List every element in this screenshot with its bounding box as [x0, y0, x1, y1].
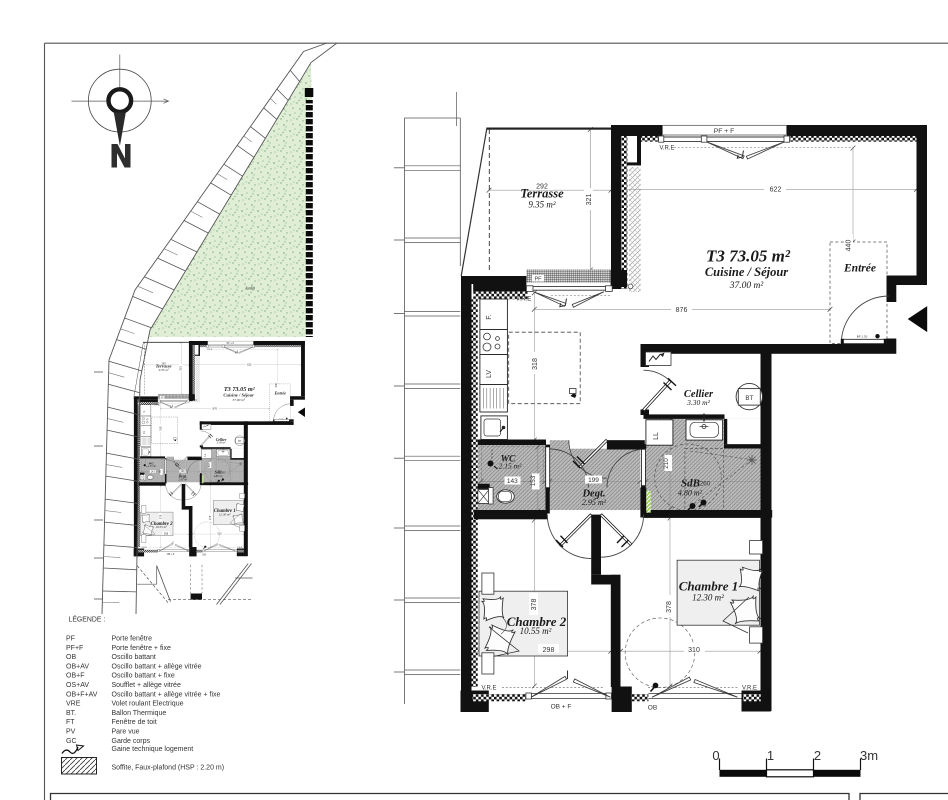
svg-text:Oscillo battant + allège vitré: Oscillo battant + allège vitrée: [112, 663, 202, 670]
svg-text:Soufflet + allège vitrée: Soufflet + allège vitrée: [112, 682, 181, 689]
svg-text:1: 1: [767, 748, 774, 763]
svg-text:10.55 m²: 10.55 m²: [520, 626, 552, 636]
svg-text:210: 210: [663, 458, 670, 469]
svg-text:Soffite, Faux-plafond (HSP : 2: Soffite, Faux-plafond (HSP : 2.20 m): [112, 765, 225, 772]
svg-text:Chambre 1: Chambre 1: [679, 579, 739, 594]
svg-text:T3 73.05 m²: T3 73.05 m²: [706, 247, 791, 266]
svg-text:V.R.E: V.R.E: [659, 146, 674, 152]
svg-text:BF 1.30: BF 1.30: [857, 335, 868, 339]
svg-text:Gaine technique logement: Gaine technique logement: [112, 746, 194, 753]
svg-text:199: 199: [588, 477, 599, 484]
svg-text:9.35 m²: 9.35 m²: [528, 200, 555, 210]
svg-text:Entrée: Entrée: [843, 263, 876, 275]
svg-text:GC: GC: [66, 738, 77, 745]
svg-text:12.30 m²: 12.30 m²: [692, 593, 724, 603]
svg-text:LV: LV: [486, 370, 493, 378]
svg-text:298: 298: [543, 647, 555, 654]
svg-text:4.80 m²: 4.80 m²: [678, 489, 703, 498]
svg-text:V.R.E: V.R.E: [516, 295, 532, 302]
svg-text:0: 0: [712, 748, 719, 763]
svg-text:318: 318: [532, 358, 539, 370]
svg-text:OB + F: OB + F: [551, 704, 572, 711]
svg-text:3.30 m²: 3.30 m²: [686, 398, 710, 407]
svg-text:622: 622: [770, 187, 782, 194]
svg-text:FT: FT: [66, 719, 75, 726]
svg-text:378: 378: [666, 601, 673, 613]
svg-text:310: 310: [688, 647, 700, 654]
svg-text:378: 378: [531, 599, 538, 611]
svg-text:Ballon Thermique: Ballon Thermique: [112, 710, 167, 717]
svg-text:Porte fenêtre: Porte fenêtre: [112, 636, 153, 643]
svg-text:440: 440: [846, 240, 853, 252]
svg-text:V.R.E: V.R.E: [742, 685, 757, 691]
svg-text:Cuisine / Séjour: Cuisine / Séjour: [705, 265, 788, 279]
svg-text:Jardin: Jardin: [245, 286, 255, 291]
svg-text:PF + F: PF + F: [714, 128, 735, 135]
svg-text:321: 321: [586, 194, 593, 206]
svg-text:2.95 m²: 2.95 m²: [582, 498, 607, 507]
svg-text:F.: F.: [486, 314, 493, 320]
svg-text:Garde corps: Garde corps: [112, 738, 151, 745]
svg-text:VRE: VRE: [66, 701, 81, 708]
svg-text:Porte fenêtre + fixe: Porte fenêtre + fixe: [112, 645, 171, 652]
svg-text:3m: 3m: [860, 748, 878, 763]
svg-text:876: 876: [676, 307, 688, 314]
svg-text:Oscillo battant + allège vitré: Oscillo battant + allège vitrée + fixe: [112, 691, 221, 698]
svg-text:BT: BT: [745, 395, 753, 402]
svg-text:143: 143: [507, 478, 518, 485]
svg-text:260: 260: [700, 481, 711, 488]
svg-text:OB+AV: OB+AV: [66, 663, 89, 670]
svg-text:Oscillo battant: Oscillo battant: [112, 654, 156, 661]
svg-text:PV: PV: [66, 729, 76, 736]
svg-text:Oscillo battant + fixe: Oscillo battant + fixe: [112, 673, 175, 680]
svg-text:LL: LL: [653, 432, 660, 440]
svg-text:PF: PF: [534, 276, 542, 282]
svg-text:LÉGENDE :: LÉGENDE :: [69, 615, 106, 624]
svg-text:BT.: BT.: [66, 710, 76, 717]
svg-text:2.15 m²: 2.15 m²: [499, 462, 522, 471]
svg-text:V.R.E: V.R.E: [481, 685, 496, 691]
svg-text:2: 2: [814, 748, 821, 763]
svg-text:153: 153: [530, 475, 537, 486]
svg-text:PF: PF: [66, 636, 75, 643]
svg-text:37.00 m²: 37.00 m²: [729, 281, 764, 291]
svg-text:Terrasse: Terrasse: [520, 187, 564, 201]
svg-text:Volet roulant Electrique: Volet roulant Electrique: [112, 701, 184, 708]
svg-text:OS+AV: OS+AV: [66, 682, 89, 689]
svg-text:Fenêtre de toit: Fenêtre de toit: [112, 719, 157, 726]
svg-text:OB+F: OB+F: [66, 673, 84, 680]
svg-text:OB: OB: [648, 705, 657, 712]
svg-text:OB+F+AV: OB+F+AV: [66, 691, 98, 698]
svg-text:Pare vue: Pare vue: [112, 729, 140, 736]
svg-text:OB: OB: [66, 654, 76, 661]
svg-text:PF+F: PF+F: [66, 645, 83, 652]
